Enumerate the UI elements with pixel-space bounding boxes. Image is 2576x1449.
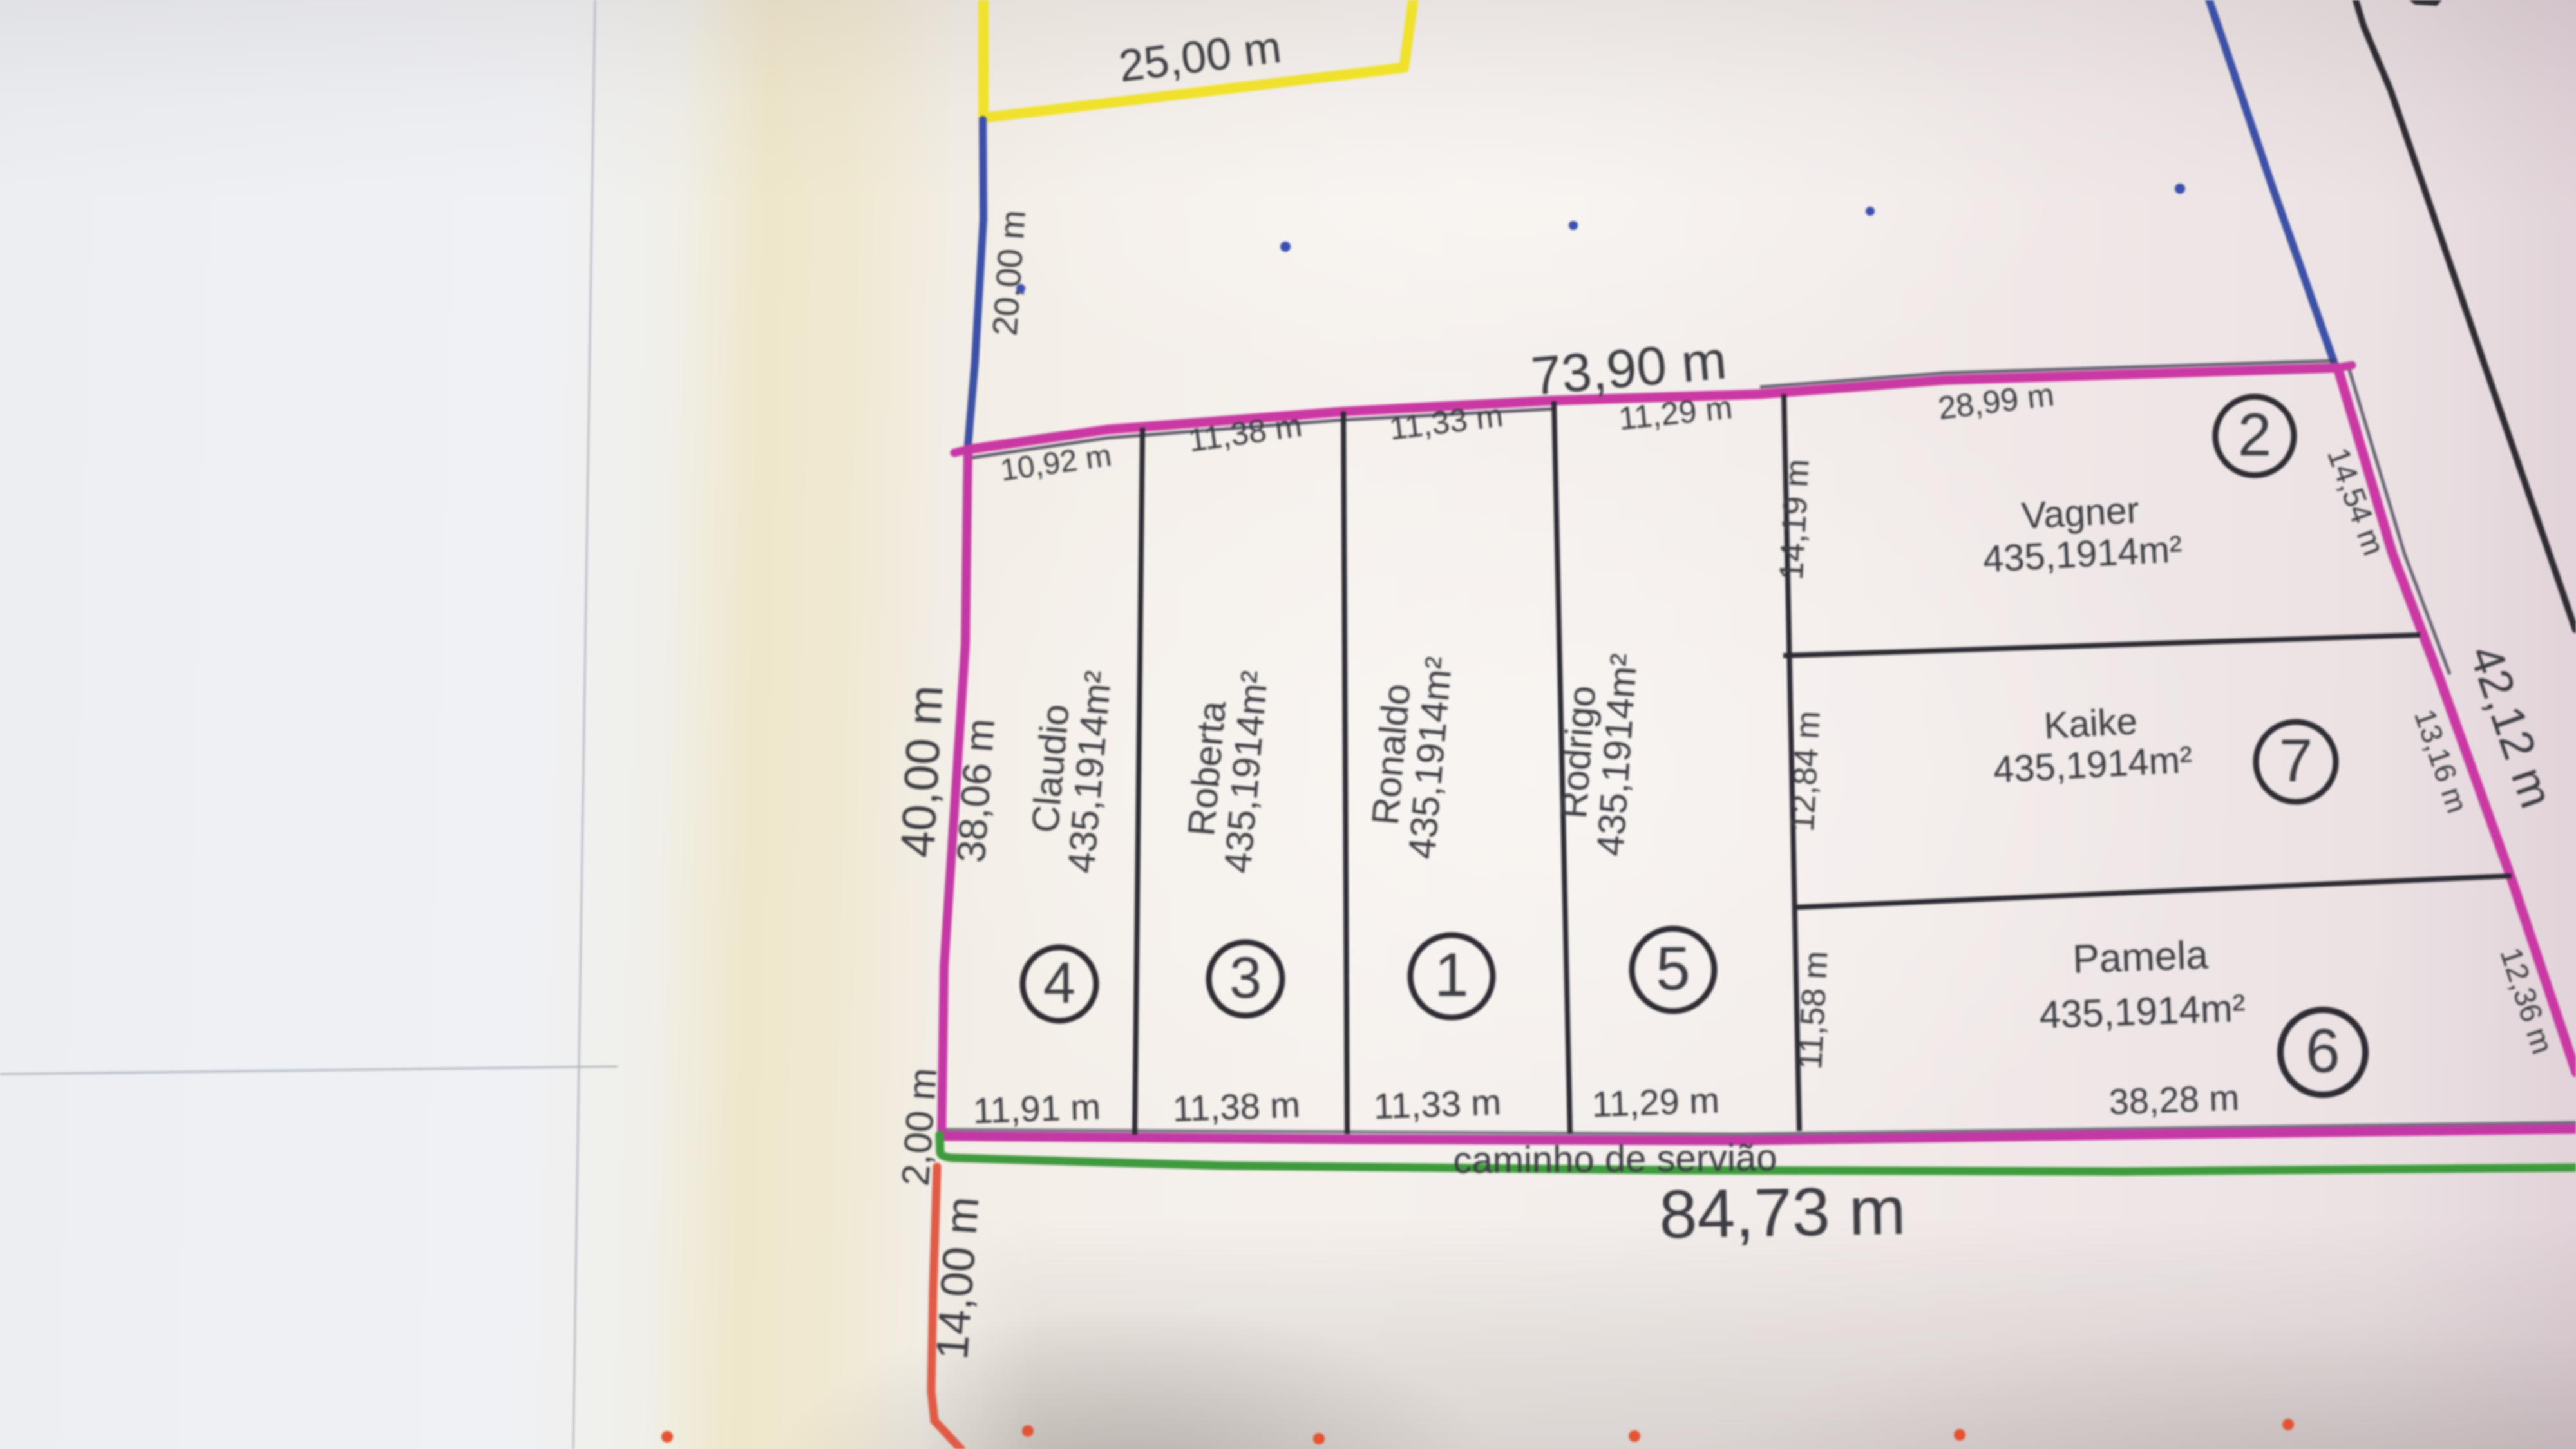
svg-text:84,73 m: 84,73 m: [1658, 1173, 1906, 1253]
svg-text:435,1914m²: 435,1914m²: [1059, 669, 1119, 875]
svg-text:435,1914m²: 435,1914m²: [1589, 652, 1645, 858]
svg-text:38,28 m: 38,28 m: [2108, 1077, 2240, 1122]
svg-text:caminho de servião: caminho de servião: [1453, 1137, 1777, 1181]
svg-text:2: 2: [2238, 401, 2271, 468]
svg-text:11,33 m: 11,33 m: [1373, 1081, 1502, 1126]
svg-text:435,1914m²: 435,1914m²: [2038, 986, 2246, 1036]
svg-text:14,19 m: 14,19 m: [1773, 458, 1817, 581]
svg-text:Vagner: Vagner: [2020, 489, 2140, 536]
svg-text:38,06 m: 38,06 m: [949, 717, 1003, 864]
svg-text:Kaike: Kaike: [2043, 700, 2138, 747]
svg-text:1: 1: [1434, 940, 1468, 1009]
svg-text:6: 6: [2306, 1016, 2340, 1085]
svg-text:2,00 m: 2,00 m: [894, 1066, 945, 1188]
svg-text:40,00 m: 40,00 m: [891, 684, 953, 858]
svg-text:11,91 m: 11,91 m: [972, 1086, 1101, 1131]
svg-text:4: 4: [1043, 951, 1075, 1016]
svg-text:5: 5: [1656, 934, 1690, 1003]
svg-text:11,58 m: 11,58 m: [1792, 950, 1835, 1070]
svg-text:435,1914m²: 435,1914m²: [1992, 739, 2193, 791]
svg-text:Pamela: Pamela: [2072, 933, 2209, 981]
svg-text:12,84 m: 12,84 m: [1784, 710, 1828, 833]
svg-text:11,38 m: 11,38 m: [1186, 407, 1304, 459]
svg-text:7: 7: [2279, 726, 2313, 794]
svg-text:11,29 m: 11,29 m: [1591, 1079, 1720, 1124]
svg-text:20,00 m: 20,00 m: [986, 209, 1033, 337]
svg-text:14,00 m: 14,00 m: [927, 1195, 988, 1361]
svg-text:435,1914m²: 435,1914m²: [1982, 528, 2183, 580]
svg-text:435,1914m²: 435,1914m²: [1216, 669, 1276, 875]
svg-text:11,38 m: 11,38 m: [1172, 1084, 1301, 1129]
svg-text:3: 3: [1229, 946, 1262, 1010]
